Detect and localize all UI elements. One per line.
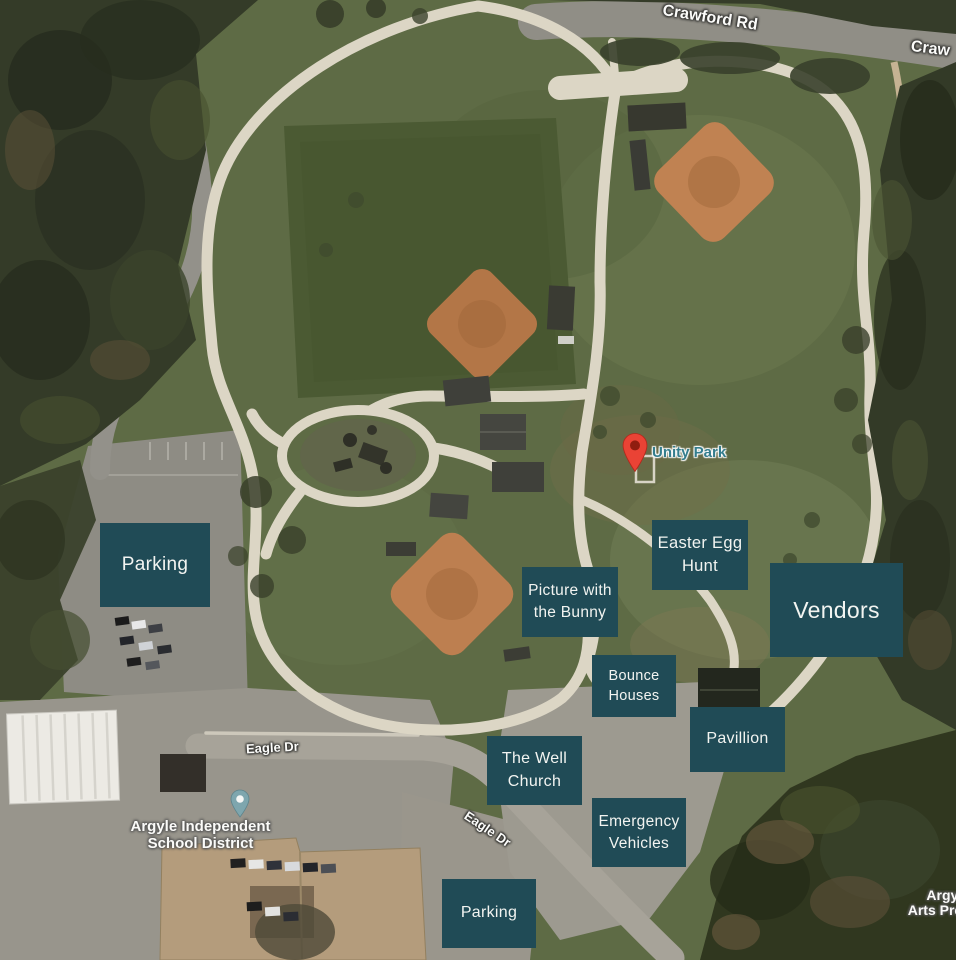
- event-label-parking-south: Parking: [442, 879, 536, 948]
- event-label-parking-northwest: Parking: [100, 523, 210, 607]
- arts-label-line2: Arts Pres: [908, 902, 956, 918]
- event-label-picture-with-the-bunny: Picture with the Bunny: [522, 567, 618, 637]
- school-label-line2: School District: [148, 835, 254, 852]
- arts-label-line1: Argyle: [926, 887, 956, 903]
- event-label-easter-egg-hunt: Easter Egg Hunt: [652, 520, 748, 590]
- poi-label-argyle-arts[interactable]: Argyle Arts Pres: [890, 888, 956, 919]
- event-label-pavillion: Pavillion: [690, 707, 785, 772]
- event-label-the-well-church: The Well Church: [487, 736, 582, 805]
- red-map-pin-icon[interactable]: [622, 432, 648, 474]
- event-label-bounce-houses: Bounce Houses: [592, 655, 676, 717]
- school-poi-pin-icon[interactable]: [230, 789, 250, 818]
- event-label-vendors: Vendors: [770, 563, 903, 657]
- road-label-eagle-dr-west[interactable]: Eagle Dr: [246, 739, 299, 757]
- playground: [300, 419, 416, 491]
- satellite-map[interactable]: Crawford Rd Craw Eagle Dr Eagle Dr Unity…: [0, 0, 956, 960]
- poi-label-school-district[interactable]: Argyle Independent School District: [128, 819, 273, 852]
- event-label-emergency-vehicles: Emergency Vehicles: [592, 798, 686, 867]
- school-label-line1: Argyle Independent: [130, 818, 270, 835]
- poi-label-unity-park[interactable]: Unity Park: [652, 444, 726, 461]
